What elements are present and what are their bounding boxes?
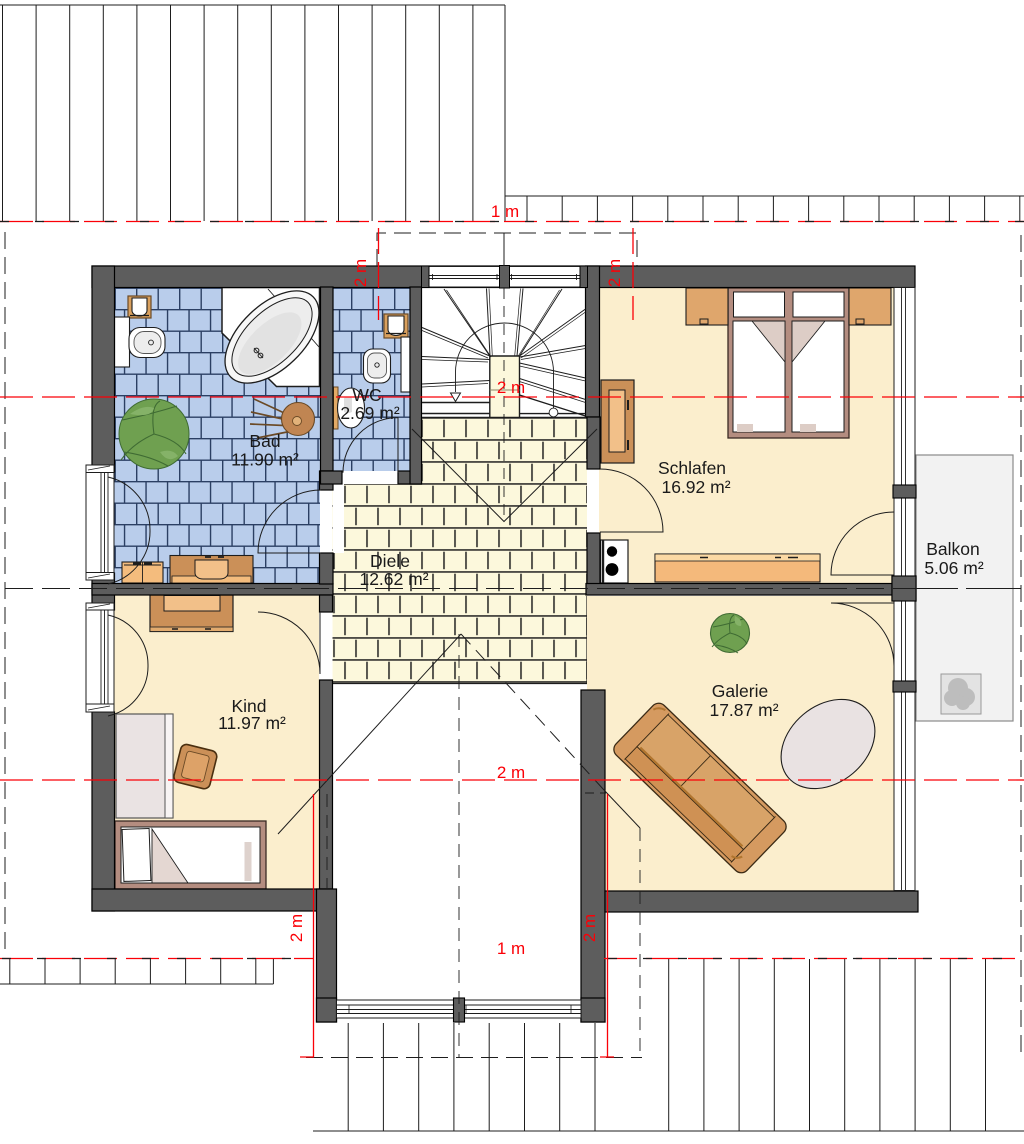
svg-text:1 m: 1 m <box>491 202 519 221</box>
svg-text:Balkon: Balkon <box>926 539 980 559</box>
svg-text:2.69 m²: 2.69 m² <box>340 403 399 423</box>
svg-text:Galerie: Galerie <box>712 681 768 701</box>
svg-text:2 m: 2 m <box>287 914 306 942</box>
svg-text:1 m: 1 m <box>497 939 525 958</box>
svg-text:11.90 m²: 11.90 m² <box>231 450 299 470</box>
svg-text:2 m: 2 m <box>580 914 599 942</box>
svg-text:Bad: Bad <box>249 431 280 451</box>
svg-text:2 m: 2 m <box>605 259 624 287</box>
svg-text:5.06 m²: 5.06 m² <box>924 558 983 578</box>
svg-text:16.92 m²: 16.92 m² <box>661 477 730 497</box>
svg-text:Schlafen: Schlafen <box>658 458 726 478</box>
svg-text:17.87 m²: 17.87 m² <box>709 700 778 720</box>
svg-text:WC: WC <box>352 385 381 405</box>
svg-text:2 m: 2 m <box>351 259 370 287</box>
svg-text:11.97 m²: 11.97 m² <box>218 713 286 733</box>
svg-text:2 m: 2 m <box>497 378 525 397</box>
svg-text:Diele: Diele <box>370 551 410 571</box>
svg-text:12.62 m²: 12.62 m² <box>359 569 428 589</box>
svg-text:2 m: 2 m <box>497 763 525 782</box>
